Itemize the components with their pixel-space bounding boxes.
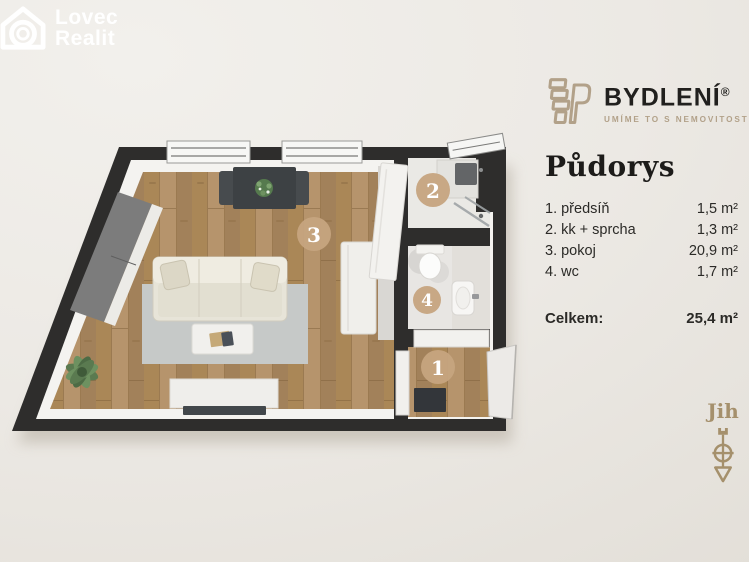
total-label: Celkem: <box>545 309 603 329</box>
compass-direction-label: Jih <box>701 399 745 423</box>
bydleni-logo: BYDLENÍ® UMÍME TO S NEMOVITOSTMI <box>543 74 749 130</box>
compass: Jih <box>701 399 745 488</box>
window <box>282 141 362 163</box>
room-marker-number: 3 <box>307 223 321 247</box>
room-marker-number: 1 <box>431 356 445 380</box>
kitchen-knob <box>479 168 483 172</box>
compass-south-icon <box>705 427 741 483</box>
faucet <box>472 294 479 299</box>
bydleni-name: BYDLENÍ® <box>604 80 749 110</box>
kitchen-appliance <box>455 163 477 185</box>
bydleni-logo-icon <box>543 74 593 130</box>
sofa <box>153 257 287 321</box>
room-area: 1,5 m² <box>697 199 738 219</box>
room-marker-number: 4 <box>421 291 433 311</box>
legend-row: 2. kk + sprcha 1,3 m² <box>545 220 738 240</box>
legend-row: 3. pokoj 20,9 m² <box>545 241 738 261</box>
tv <box>183 406 266 415</box>
room-marker-4: 4 <box>413 286 441 314</box>
tv-sideboard <box>170 379 278 408</box>
dining-set <box>219 167 309 209</box>
tall-cabinet <box>341 242 376 334</box>
lovec-realit-wordmark: Lovec Realit <box>55 7 118 49</box>
lovec-realit-house-icon <box>0 5 46 51</box>
room-area: 20,9 m² <box>689 241 738 261</box>
page: 1 2 3 4 Lovec Realit <box>0 0 749 562</box>
bydleni-wordmark: BYDLENÍ® UMÍME TO S NEMOVITOSTMI <box>604 74 749 124</box>
room-area: 1,3 m² <box>697 220 738 240</box>
bydleni-tagline: UMÍME TO S NEMOVITOSTMI <box>604 115 749 124</box>
table-plant <box>255 179 273 197</box>
legend-row: 1. předsíň 1,5 m² <box>545 199 738 219</box>
legend-panel: Půdorys 1. předsíň 1,5 m² 2. kk + sprcha… <box>545 150 738 330</box>
lovec-logo-line2: Realit <box>55 28 118 49</box>
bydleni-name-text: BYDLENÍ <box>604 83 721 111</box>
wall-room2-room4 <box>394 228 490 246</box>
room-marker-1: 1 <box>421 350 455 384</box>
entrance-door <box>487 345 516 419</box>
wc-door <box>414 330 489 347</box>
registered-mark: ® <box>721 85 730 99</box>
hallway-cabinet <box>414 388 446 412</box>
room-marker-3: 3 <box>297 217 331 251</box>
total-area: 25,4 m² <box>686 309 738 329</box>
corner-wall-block <box>476 147 506 212</box>
lovec-realit-logo: Lovec Realit <box>0 5 118 51</box>
room-marker-number: 2 <box>426 179 440 203</box>
book <box>221 331 234 346</box>
room-label: 3. pokoj <box>545 241 596 261</box>
legend-row: 4. wc 1,7 m² <box>545 262 738 282</box>
room-area: 1,7 m² <box>697 262 738 282</box>
window <box>167 141 250 163</box>
sofa-pillow <box>160 260 191 291</box>
room-label: 1. předsíň <box>545 199 610 219</box>
room-label: 4. wc <box>545 262 579 282</box>
interior-door-hallway <box>396 351 409 415</box>
page-title: Půdorys <box>545 150 738 183</box>
sofa-pillow <box>250 262 280 292</box>
room-marker-2: 2 <box>416 173 450 207</box>
lovec-logo-line1: Lovec <box>55 7 118 28</box>
total-row: Celkem: 25,4 m² <box>545 309 738 329</box>
room-label: 2. kk + sprcha <box>545 220 636 240</box>
dining-chair <box>219 171 235 205</box>
coffee-table <box>192 324 253 354</box>
